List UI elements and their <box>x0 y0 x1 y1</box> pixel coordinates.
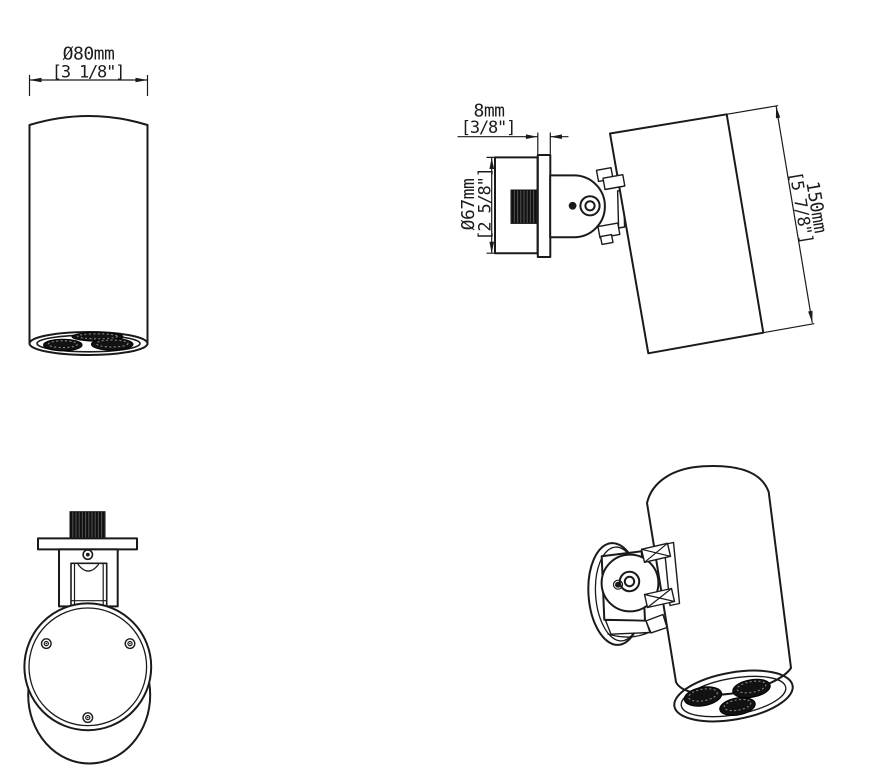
plate-thickness-dimension: 8mm [3/8"] <box>458 101 568 154</box>
perspective-view <box>585 466 797 730</box>
arrowhead-left-icon <box>30 78 42 83</box>
cylinder-body <box>610 114 763 353</box>
set-screw <box>569 202 577 210</box>
threaded-stem <box>70 512 105 539</box>
back-plate-outer <box>24 603 151 730</box>
dim-base-imperial: [2 5/8"] <box>476 168 496 240</box>
base-diameter-dimension: Ø67mm [2 5/8"] <box>458 157 497 253</box>
side-view: 8mm [3/8"] Ø67mm [2 5/8"] <box>458 101 831 354</box>
rear-view <box>24 512 151 764</box>
diameter-dimension: Ø80mm [3 1/8"] <box>30 44 148 96</box>
dim-plate-imperial: [3/8"] <box>461 118 515 138</box>
bracket-bottom <box>606 620 651 634</box>
mount-plate <box>538 155 551 257</box>
set-screw <box>615 582 621 588</box>
mount-plate <box>38 538 137 549</box>
arrowhead-right-icon <box>136 78 148 83</box>
cylinder-body <box>30 116 148 344</box>
threaded-stem <box>511 190 536 223</box>
screw-dot <box>86 553 90 557</box>
front-view: Ø80mm [3 1/8"] <box>30 44 148 356</box>
pivot-joint-inner <box>625 577 634 586</box>
technical-drawing-page: Ø80mm [3 1/8"] 8mm [3/8"] <box>0 0 880 773</box>
technical-drawing-canvas: Ø80mm [3 1/8"] 8mm [3/8"] <box>0 0 880 773</box>
dim-diameter-metric: Ø80mm <box>63 44 115 65</box>
pivot-joint-inner <box>585 201 594 210</box>
